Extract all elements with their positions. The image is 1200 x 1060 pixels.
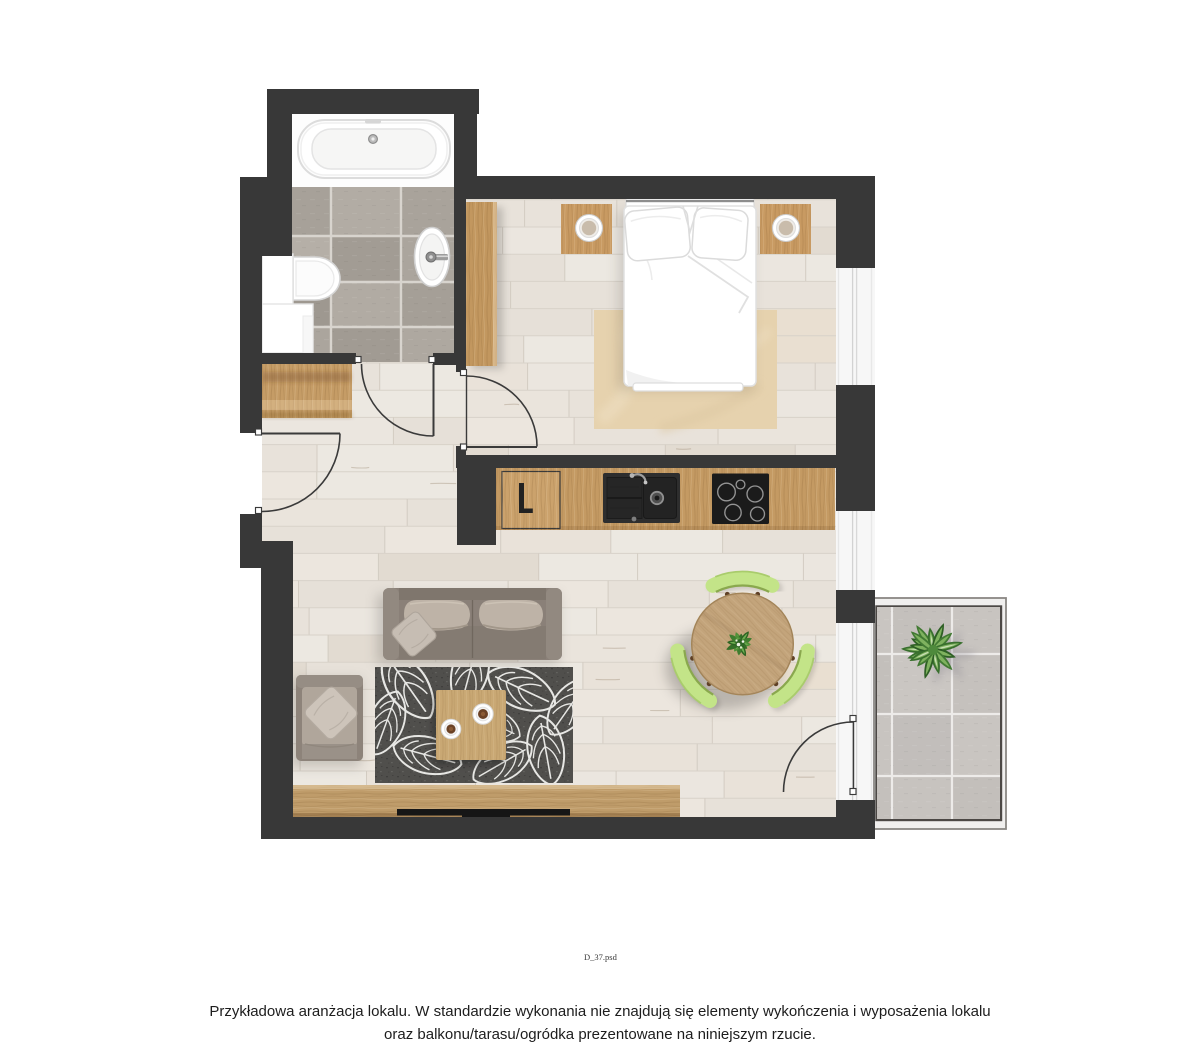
svg-text:Przykładowa aranżacja lokalu.: Przykładowa aranżacja lokalu. W standard… bbox=[209, 1003, 990, 1020]
svg-text:oraz balkonu/tarasu/ogródka pr: oraz balkonu/tarasu/ogródka prezentowane… bbox=[384, 1026, 816, 1043]
svg-text:D_37.psd: D_37.psd bbox=[584, 952, 618, 962]
